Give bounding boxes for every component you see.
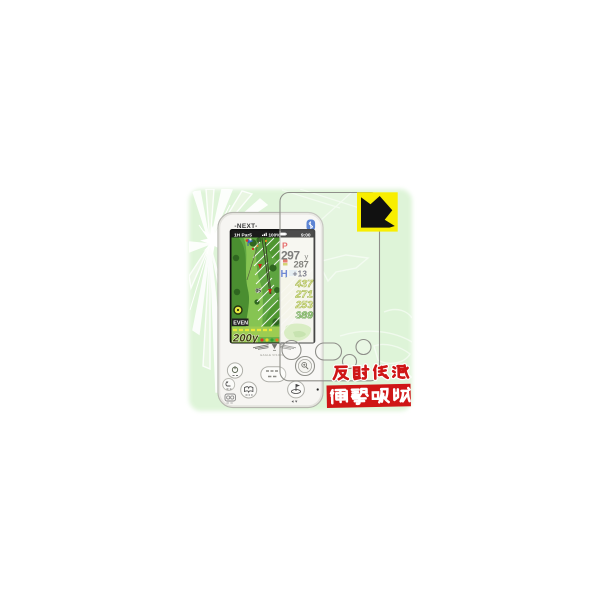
svg-text:-NEXT-: -NEXT-: [234, 223, 257, 230]
svg-text:EVEN: EVEN: [233, 321, 248, 327]
svg-text:1H Par5: 1H Par5: [234, 232, 252, 238]
svg-text:100%: 100%: [269, 232, 281, 237]
svg-text:05: 05: [256, 289, 262, 295]
